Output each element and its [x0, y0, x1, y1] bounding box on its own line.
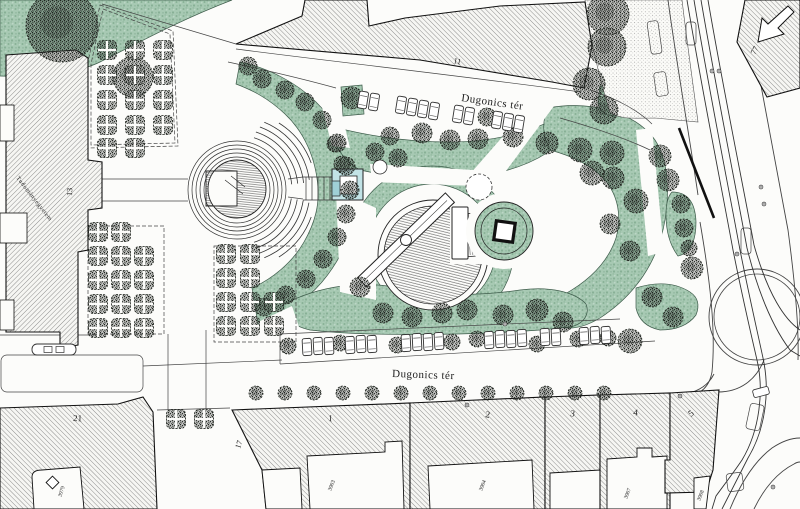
label-street-bottom: Dugonics tér — [392, 368, 455, 382]
tree-icon — [394, 386, 408, 400]
tree-icon — [602, 167, 624, 189]
tree-icon — [365, 386, 379, 400]
tree-icon — [314, 250, 332, 268]
parked-car-icon — [517, 329, 527, 346]
tree-icon — [341, 181, 359, 199]
tree-icon — [568, 386, 582, 400]
tree-icon — [620, 241, 640, 261]
square-tree-icon — [126, 116, 145, 135]
parked-car-icon — [434, 332, 444, 349]
square-tree-icon — [154, 116, 173, 135]
pool-side-block — [332, 181, 340, 196]
square-tree-icon — [112, 295, 131, 314]
tree-icon — [444, 334, 460, 350]
court-3979 — [32, 467, 84, 509]
site-plan-map: Dugonics tér Dugonics tér 11 77 13 Tudom… — [0, 0, 800, 509]
tree-icon — [510, 386, 524, 400]
parked-car-icon — [401, 334, 411, 351]
tree-icon — [328, 228, 346, 246]
tree-icon — [337, 157, 355, 175]
tree-icon — [600, 141, 624, 165]
tree-icon — [468, 129, 488, 149]
parked-car-icon — [412, 333, 422, 350]
court-17 — [262, 468, 302, 509]
tree-icon — [663, 307, 683, 327]
square-tree-icon — [112, 271, 131, 290]
square-tree-icon — [217, 293, 236, 312]
tree-icon — [452, 386, 466, 400]
pole-icon — [771, 485, 775, 489]
square-tree-icon — [89, 247, 108, 266]
label-building-21: 21 — [73, 413, 82, 423]
parked-car-icon — [506, 330, 516, 347]
label-building-1: 1 — [328, 413, 333, 423]
tree-icon — [432, 303, 452, 323]
parked-car-icon — [367, 335, 377, 352]
parked-car-icon — [302, 338, 312, 355]
parked-car-icon — [324, 337, 334, 354]
tree-icon — [649, 145, 671, 167]
square-tree-icon — [195, 410, 214, 429]
square-tree-icon — [89, 295, 108, 314]
square-tree-icon — [126, 41, 145, 60]
square-tree-icon — [89, 223, 108, 242]
tree-icon — [457, 300, 477, 320]
square-tree-icon — [241, 293, 260, 312]
square-tree-icon — [265, 317, 284, 336]
square-tree-icon — [135, 295, 154, 314]
square-tree-icon — [98, 66, 117, 85]
tree-icon — [580, 161, 604, 185]
tree-icon — [618, 329, 642, 353]
path-node-circle — [466, 174, 492, 200]
tree-icon — [440, 130, 460, 150]
square-tree-icon — [112, 319, 131, 338]
tree-icon — [469, 331, 485, 347]
parked-car-icon — [423, 333, 433, 350]
square-tree-icon — [98, 116, 117, 135]
square-tree-icon — [126, 91, 145, 110]
tree-icon — [493, 305, 513, 325]
square-tree-icon — [217, 245, 236, 264]
square-tree-icon — [112, 247, 131, 266]
parked-car-icon — [495, 330, 505, 347]
tree-icon — [350, 277, 370, 297]
tree-icon — [590, 96, 618, 124]
tree-icon — [296, 93, 314, 111]
tree-icon — [280, 338, 296, 354]
tree-icon — [373, 303, 393, 323]
square-tree-icon — [154, 91, 173, 110]
pole-icon — [503, 322, 507, 326]
pole-icon — [735, 252, 739, 256]
parked-car-icon — [579, 327, 589, 344]
tree-icon — [239, 57, 257, 75]
tree-icon — [423, 386, 437, 400]
tree-icon — [681, 257, 703, 279]
bus-icon — [32, 344, 76, 355]
tree-icon — [313, 111, 331, 129]
bridge — [452, 207, 468, 259]
bar-pivot — [401, 235, 412, 246]
tree-icon — [328, 134, 346, 152]
label-building-13: 13 — [65, 188, 74, 196]
monument-icon — [494, 221, 515, 242]
tree-icon — [600, 214, 620, 234]
tree-icon — [526, 299, 548, 321]
tree-icon — [675, 219, 693, 237]
tree-icon — [597, 386, 611, 400]
tree-icon — [539, 386, 553, 400]
square-tree-icon — [135, 271, 154, 290]
square-tree-icon — [126, 139, 145, 158]
uni-court1 — [0, 105, 14, 141]
square-tree-icon — [126, 66, 145, 85]
pole-icon — [465, 403, 469, 407]
pole-icon — [759, 185, 763, 189]
parked-car-icon — [540, 328, 550, 345]
tree-icon — [336, 386, 350, 400]
square-tree-icon — [112, 223, 131, 242]
square-tree-icon — [265, 293, 284, 312]
tree-icon — [573, 68, 605, 100]
square-tree-icon — [241, 317, 260, 336]
tree-icon — [307, 386, 321, 400]
tree-icon — [642, 287, 662, 307]
square-tree-icon — [98, 139, 117, 158]
parked-car-icon — [551, 328, 561, 345]
tree-icon — [276, 81, 294, 99]
tree-icon — [366, 143, 384, 161]
parked-car-icon — [601, 326, 611, 343]
square-tree-icon — [89, 319, 108, 338]
parked-car-icon — [484, 331, 494, 348]
square-tree-icon — [98, 91, 117, 110]
tree-icon — [297, 270, 315, 288]
tree-icon — [672, 195, 690, 213]
tree-icon — [402, 307, 422, 327]
square-tree-icon — [217, 317, 236, 336]
tree-icon — [657, 169, 679, 191]
tree-icon — [536, 132, 558, 154]
tree-icon — [249, 386, 263, 400]
tree-icon — [381, 127, 399, 145]
tree-icon — [412, 123, 432, 143]
pole-icon — [762, 202, 766, 206]
square-tree-icon — [135, 247, 154, 266]
tree-icon — [253, 70, 271, 88]
tree-icon — [337, 205, 355, 223]
pole-icon — [710, 69, 714, 73]
tree-icon — [481, 386, 495, 400]
tree-icon — [278, 386, 292, 400]
tree-icon — [568, 138, 592, 162]
parked-car-icon — [356, 335, 366, 352]
tree-icon — [681, 240, 697, 256]
square-tree-icon — [217, 269, 236, 288]
square-tree-icon — [135, 319, 154, 338]
square-tree-icon — [154, 66, 173, 85]
tree-icon — [588, 28, 626, 66]
small-clearing-circle — [373, 160, 387, 174]
building-5 — [665, 390, 719, 493]
parked-car-icon — [313, 337, 323, 354]
site-plan-page: Dugonics tér Dugonics tér 11 77 13 Tudom… — [0, 0, 800, 509]
court-b3 — [550, 470, 600, 509]
tree-icon — [624, 189, 648, 213]
square-tree-icon — [167, 410, 186, 429]
uni-court3 — [0, 300, 14, 330]
square-tree-icon — [241, 245, 260, 264]
pole-icon — [717, 69, 721, 73]
uni-court2 — [0, 213, 27, 243]
square-tree-icon — [89, 271, 108, 290]
pole-icon — [678, 394, 682, 398]
tree-icon — [389, 149, 407, 167]
parked-car-icon — [590, 326, 600, 343]
square-tree-icon — [98, 41, 117, 60]
square-tree-icon — [154, 41, 173, 60]
parked-car-icon — [345, 336, 355, 353]
square-tree-icon — [241, 269, 260, 288]
